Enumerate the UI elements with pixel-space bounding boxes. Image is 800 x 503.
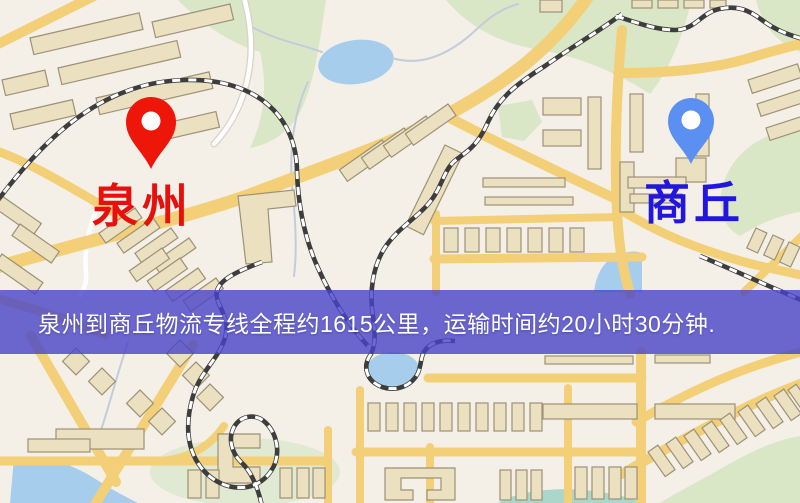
roads [0,0,800,503]
destination-label: 商丘 [644,178,744,229]
origin-pin-hole [142,112,161,131]
destination-pin-hole [682,111,701,130]
route-banner-text: 泉州到商丘物流专线全程约1615公里，运输时间约20小时30分钟. [38,305,715,339]
lake [315,35,396,89]
origin-label: 泉州 [92,181,192,232]
origin-pin[interactable] [126,97,176,169]
map-canvas[interactable]: 泉州 商丘 [0,0,800,503]
route-banner: 泉州到商丘物流专线全程约1615公里，运输时间约20小时30分钟. [0,290,800,354]
map-screenshot: 泉州 商丘 泉州到商丘物流专线全程约1615公里，运输时间约20小时30分钟. [0,0,800,503]
origin-marker[interactable]: 泉州 [92,97,192,232]
